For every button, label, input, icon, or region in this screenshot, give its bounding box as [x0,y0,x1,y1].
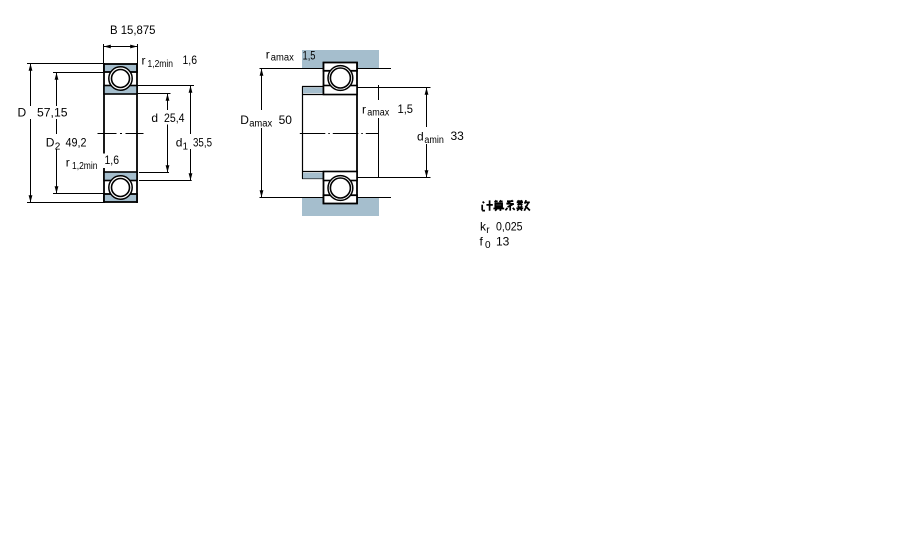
svg-text:50: 50 [279,113,293,127]
svg-text:49,2: 49,2 [66,136,87,150]
svg-text:1,2min: 1,2min [148,59,174,70]
svg-text:r: r [362,103,366,117]
svg-text:D: D [46,136,55,150]
svg-text:D: D [18,106,27,120]
svg-text:0: 0 [485,240,491,251]
svg-text:f: f [480,235,484,249]
svg-text:r: r [486,225,490,236]
svg-text:1,2min: 1,2min [72,161,98,172]
svg-text:D: D [240,113,249,127]
svg-text:57,15: 57,15 [37,106,68,120]
svg-text:1,5: 1,5 [303,49,316,63]
svg-text:r: r [266,48,270,62]
svg-text:r: r [66,156,70,170]
svg-text:13: 13 [496,235,510,249]
svg-text:amax: amax [271,53,294,64]
svg-text:1,5: 1,5 [398,102,414,116]
svg-text:amax: amax [367,108,389,119]
svg-text:d: d [151,111,158,125]
svg-text:33: 33 [451,129,465,143]
svg-text:d: d [176,136,183,150]
svg-text:r: r [142,54,146,68]
svg-text:2: 2 [55,142,61,153]
svg-text:1,6: 1,6 [105,153,120,167]
svg-text:0,025: 0,025 [496,219,523,233]
svg-text:1: 1 [183,142,189,153]
svg-text:25,4: 25,4 [164,111,185,125]
svg-text:amin: amin [424,135,444,146]
svg-text:B 15,875: B 15,875 [110,23,156,37]
svg-text:amax: amax [249,118,272,129]
svg-text:1,6: 1,6 [183,53,198,67]
svg-text:d: d [417,129,424,143]
svg-text:35,5: 35,5 [193,136,212,150]
